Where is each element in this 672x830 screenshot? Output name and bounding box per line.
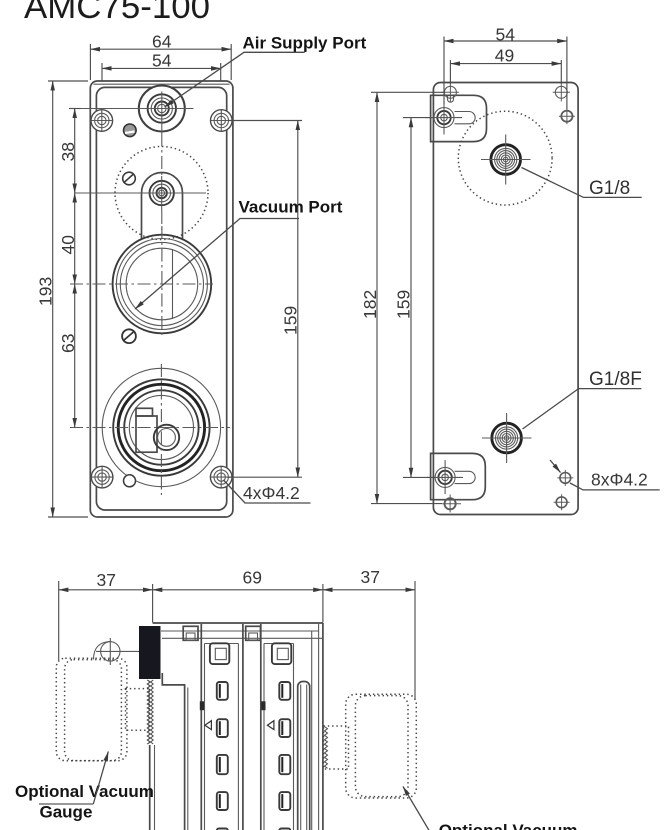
svg-text:63: 63: [58, 334, 78, 353]
svg-text:37: 37: [361, 567, 380, 587]
svg-text:159: 159: [281, 306, 301, 335]
svg-text:Optional Vacuum: Optional Vacuum: [439, 821, 578, 830]
svg-text:49: 49: [495, 46, 514, 66]
svg-text:193: 193: [36, 277, 56, 306]
svg-text:AMC75-100: AMC75-100: [24, 0, 210, 26]
svg-text:Gauge: Gauge: [40, 803, 93, 822]
svg-text:64: 64: [152, 31, 172, 51]
svg-text:69: 69: [243, 568, 262, 588]
svg-text:8xΦ4.2: 8xΦ4.2: [591, 470, 648, 490]
svg-text:Air Supply Port: Air Supply Port: [243, 34, 367, 53]
svg-text:4xΦ4.2: 4xΦ4.2: [243, 483, 300, 503]
svg-text:159: 159: [394, 290, 414, 319]
svg-text:54: 54: [496, 25, 516, 45]
svg-text:37: 37: [97, 570, 116, 590]
svg-text:40: 40: [58, 235, 78, 255]
svg-text:G1/8: G1/8: [589, 178, 630, 199]
svg-text:182: 182: [360, 290, 380, 319]
svg-text:54: 54: [152, 51, 172, 71]
svg-text:38: 38: [58, 142, 78, 161]
svg-text:G1/8F: G1/8F: [589, 369, 642, 390]
svg-text:Optional Vacuum: Optional Vacuum: [15, 782, 154, 801]
svg-text:Vacuum Port: Vacuum Port: [239, 198, 343, 217]
